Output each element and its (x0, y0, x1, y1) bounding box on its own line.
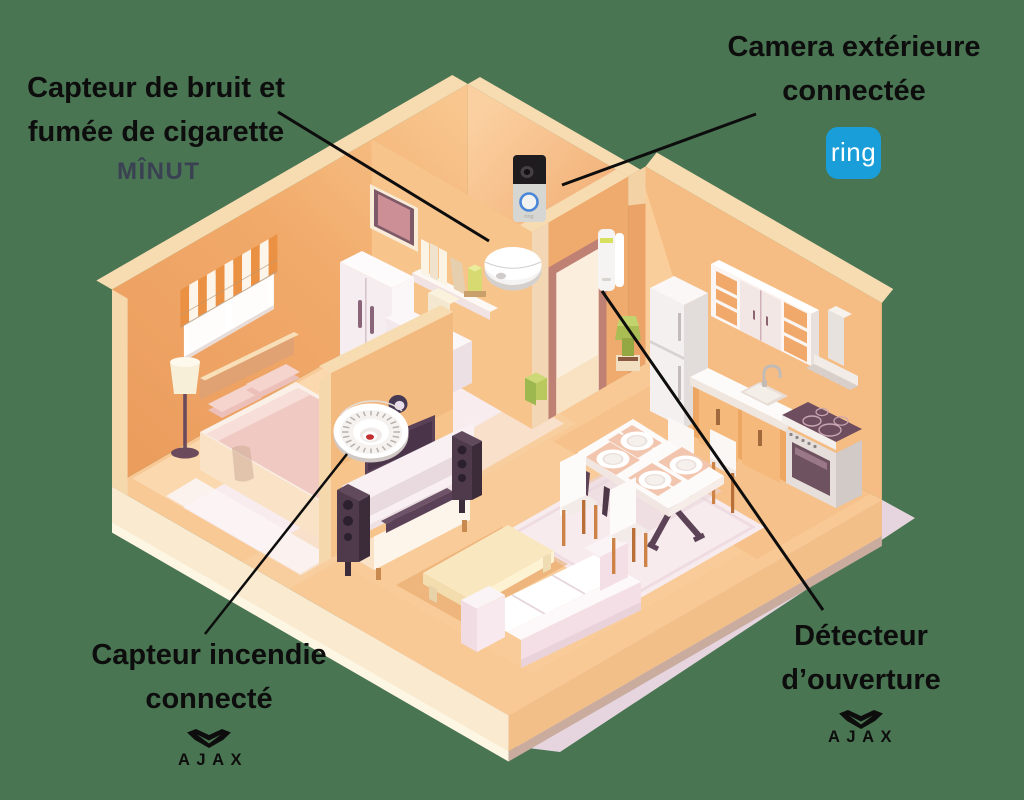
svg-text:ring: ring (524, 214, 533, 220)
